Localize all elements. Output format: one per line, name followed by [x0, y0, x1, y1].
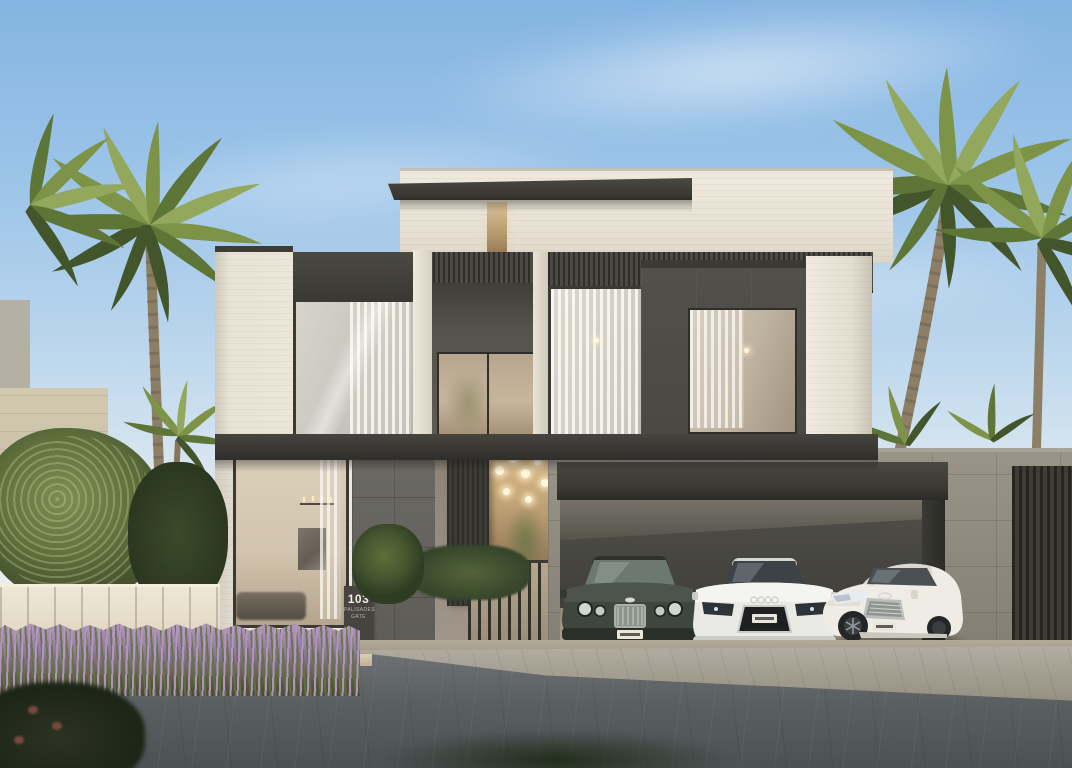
glass-mullion	[487, 352, 489, 438]
sheer-curtain	[690, 310, 744, 428]
floor-fascia-shadow	[215, 460, 878, 472]
car-sedan-white	[815, 548, 965, 650]
glass-reflection	[295, 302, 411, 436]
red-flower	[28, 706, 38, 714]
red-flower	[52, 722, 62, 730]
stone-pier	[533, 252, 548, 438]
candle-light	[303, 497, 305, 502]
corner-stone-pier	[806, 256, 872, 438]
floor-fascia-band	[215, 434, 878, 460]
globe-pendant-light	[525, 496, 532, 503]
address-line2: GATE	[344, 615, 373, 620]
sheer-curtain	[551, 289, 638, 435]
side-louver-gate	[1012, 466, 1072, 658]
car-coupe-dark	[560, 552, 700, 647]
red-flower	[14, 736, 24, 744]
pendant-light	[744, 348, 749, 353]
upper-window1-header	[293, 252, 413, 300]
interior-furniture	[236, 592, 306, 620]
upper-wall-white-left	[215, 246, 293, 452]
villa-rendering: 103 PALISADES GATE	[0, 0, 1072, 768]
pendant-light	[594, 338, 599, 343]
candle-light	[312, 496, 314, 501]
tree-reflection	[445, 372, 491, 432]
globe-pendant-light	[503, 488, 510, 495]
bush-row	[410, 545, 530, 600]
palm-fronds-low-right	[853, 383, 1039, 451]
plant-by-entrance	[352, 524, 424, 604]
roof-fascia-shadow	[400, 198, 692, 212]
stone-pier	[413, 250, 432, 440]
address-line1: PALISADES	[344, 608, 373, 613]
sheer-curtain	[320, 458, 341, 619]
